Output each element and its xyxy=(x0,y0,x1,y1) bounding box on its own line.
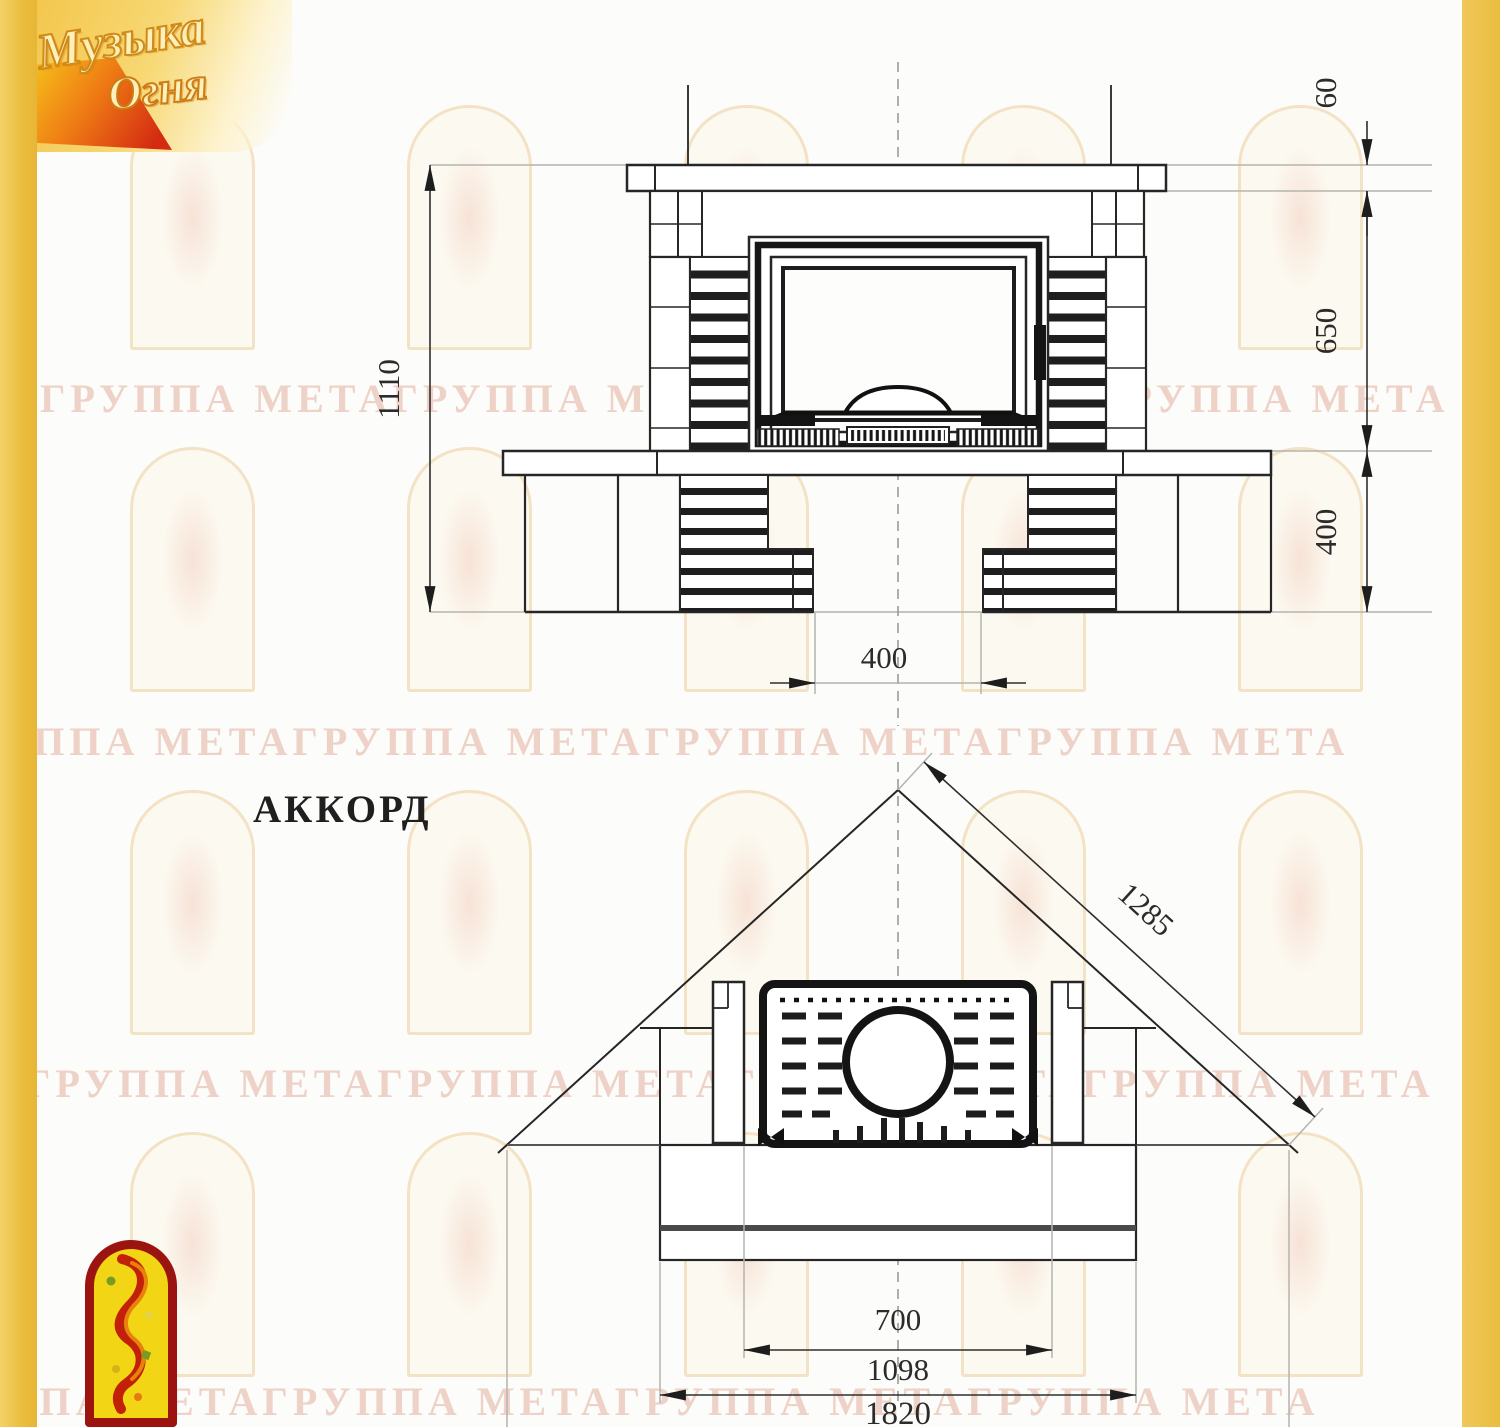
left-accent-bar xyxy=(0,0,37,1427)
brick-column-right xyxy=(1048,257,1106,451)
firebox-handle xyxy=(1034,325,1046,380)
technical-drawing: 1110 60 650 400 400 АККОРД xyxy=(0,0,1500,1427)
muzyka-ognya-logo: Музыка Огня xyxy=(0,0,292,152)
dim-diagonal: 1285 xyxy=(1111,875,1180,943)
dim-mantel: 60 xyxy=(1308,78,1343,109)
dim-hearth-width: 1098 xyxy=(867,1352,929,1387)
brick-column-left xyxy=(690,257,749,451)
dim-base: 400 xyxy=(1308,509,1343,556)
page: ГРУППА МЕТАГРУППА МЕТАГРУППА МЕТАГРУППА … xyxy=(0,0,1500,1427)
dim-niche: 400 xyxy=(861,640,908,675)
flue-circle xyxy=(846,1010,950,1114)
firebox-front xyxy=(749,237,1048,451)
hearth-shelf xyxy=(503,451,1271,475)
right-accent-bar xyxy=(1462,0,1500,1427)
dim-total-height: 1110 xyxy=(371,359,406,419)
dim-middle: 650 xyxy=(1308,308,1343,355)
mantel-shelf xyxy=(627,165,1166,191)
plan-hearth xyxy=(660,1145,1136,1260)
logo-word-2: Огня xyxy=(105,56,210,121)
dim-opening: 700 xyxy=(875,1302,922,1337)
plan-view: 1285 700 1098 1820 xyxy=(498,753,1323,1427)
dim-total-width: 1820 xyxy=(865,1396,931,1427)
front-view: 1110 60 650 400 400 xyxy=(371,62,1432,726)
flame-emblem-icon xyxy=(85,1240,177,1427)
model-title: АККОРД xyxy=(253,788,432,831)
